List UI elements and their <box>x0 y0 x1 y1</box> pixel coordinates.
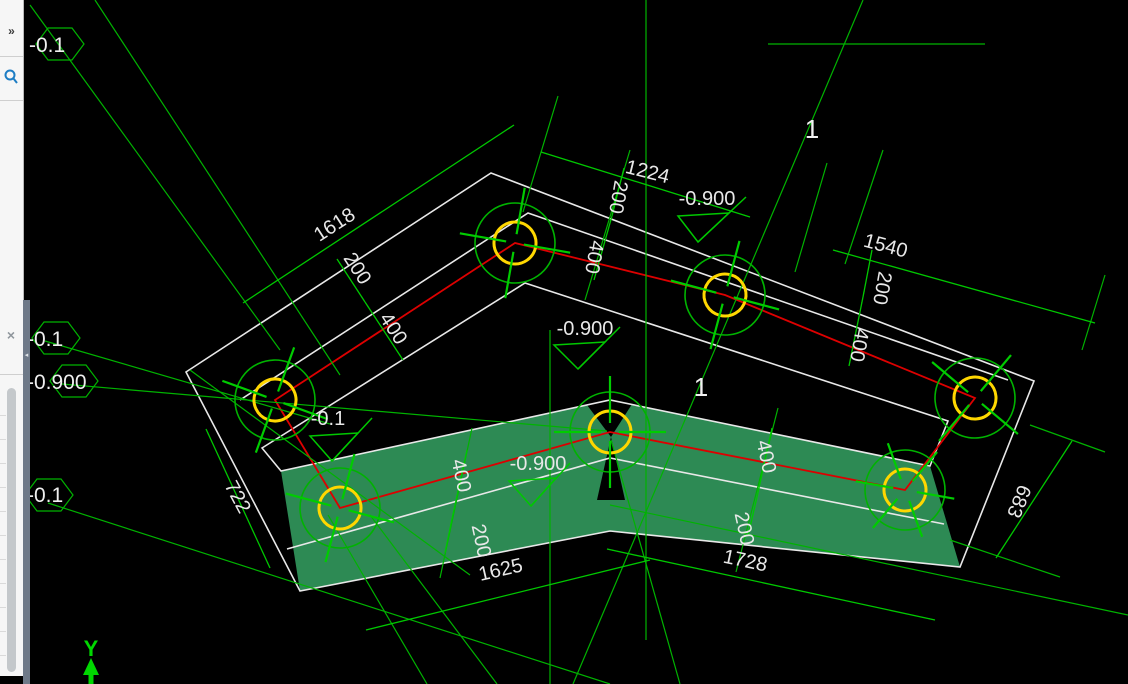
edge-elevation-labels[interactable]: -0.1 -0.1 -0.900 -0.1 <box>25 28 98 511</box>
section-label[interactable]: 1 <box>805 114 819 144</box>
elevation-text[interactable]: -0.900 <box>679 188 736 210</box>
dim-text[interactable]: 1728 <box>721 546 769 577</box>
elevation-label[interactable]: -0.1 <box>27 328 63 351</box>
dim-text[interactable]: 200 <box>868 270 895 307</box>
panel-splitter[interactable]: ◂ <box>23 300 30 684</box>
construction-lines <box>30 0 1128 684</box>
section-line-1[interactable] <box>573 0 863 684</box>
cad-canvas[interactable]: 1224 200 400 1540 200 400 1618 200 400 4… <box>0 0 1128 684</box>
dim-text[interactable]: 1618 <box>310 204 359 247</box>
dim-text[interactable]: 1625 <box>476 554 524 585</box>
scrollbar-thumb[interactable] <box>7 388 16 672</box>
elevation-text[interactable]: -0.900 <box>510 453 567 475</box>
collapse-arrow-icon: ◂ <box>23 352 30 359</box>
divider <box>0 374 23 375</box>
cad-application-window: 1224 200 400 1540 200 400 1618 200 400 4… <box>0 0 1128 684</box>
section-label[interactable]: 1 <box>694 372 708 402</box>
left-sidebar: » × <box>0 0 24 676</box>
y-axis-label: Y <box>84 636 99 661</box>
dim-text[interactable]: 722 <box>220 477 255 517</box>
elevation-text[interactable]: -0.900 <box>557 318 614 340</box>
dim-text[interactable]: 1540 <box>861 230 910 263</box>
dim-text[interactable]: 200 <box>604 179 631 216</box>
search-icon[interactable] <box>3 68 19 86</box>
elevation-label[interactable]: -0.900 <box>27 371 87 394</box>
dim-text[interactable]: 400 <box>845 327 872 364</box>
divider <box>0 100 23 101</box>
elevation-text[interactable]: -0.1 <box>311 408 345 430</box>
divider <box>0 56 23 57</box>
close-panel-button[interactable]: × <box>0 328 22 342</box>
list-row-separators <box>0 392 6 672</box>
dim-text[interactable]: 200 <box>339 249 376 289</box>
dim-text[interactable]: 683 <box>1002 482 1035 521</box>
elevation-label[interactable]: -0.1 <box>29 34 65 57</box>
expand-panel-button[interactable]: » <box>0 24 22 38</box>
elevation-label[interactable]: -0.1 <box>27 484 63 507</box>
dim-text[interactable]: 400 <box>580 239 607 276</box>
y-axis-arrow-shaft <box>89 675 94 684</box>
ucs-y-axis-icon: Y <box>83 636 99 684</box>
